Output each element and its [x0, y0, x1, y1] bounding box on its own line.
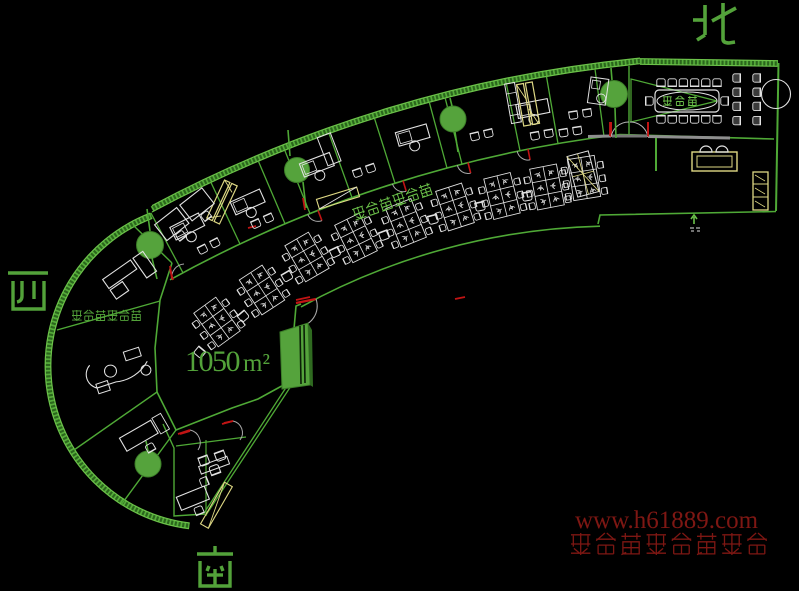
svg-text:1050: 1050	[185, 345, 240, 378]
svg-text:www.h61889.com: www.h61889.com	[575, 507, 759, 534]
svg-text:m²: m²	[243, 350, 270, 377]
